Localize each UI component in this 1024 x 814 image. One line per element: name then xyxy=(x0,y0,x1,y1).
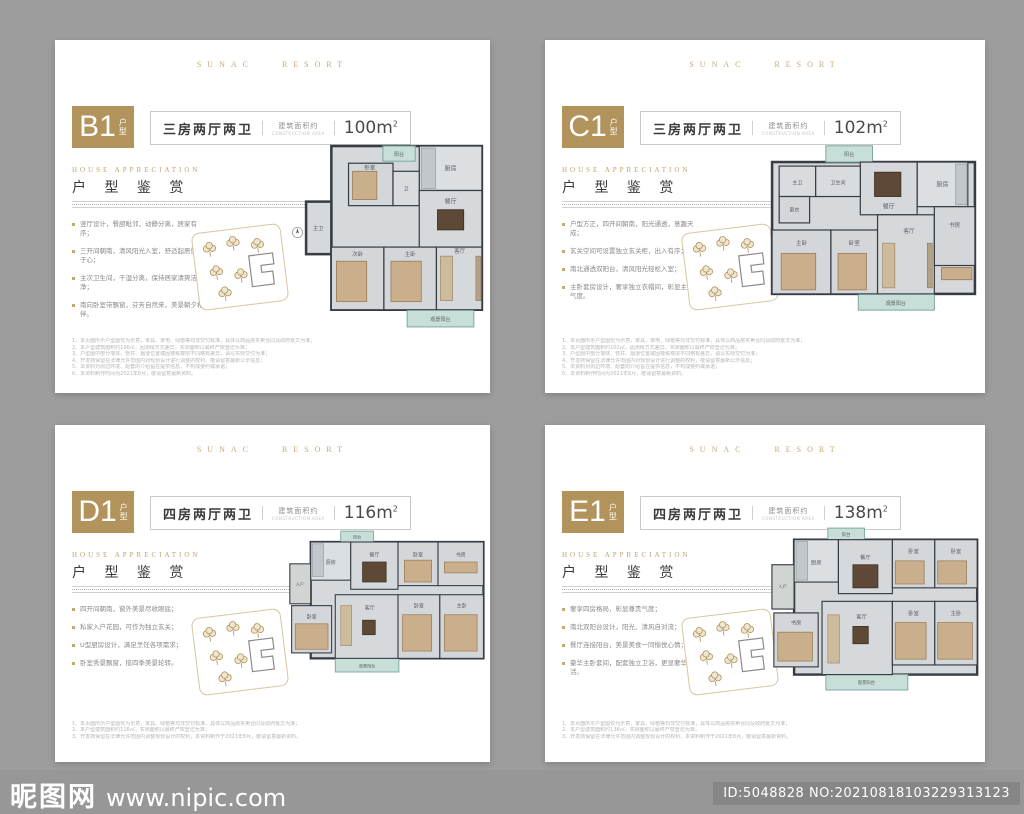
poster-canvas: SUNAC RESORT B1 户 型 三房两厅两卫 建筑面积约 CONSTRU… xyxy=(0,0,1024,814)
site-map-graphic xyxy=(682,609,779,695)
watermark-bar: 昵图网 www.nipic.com ID:5048828 NO:20210818… xyxy=(0,770,1024,814)
section-title-cn: 户 型 鉴 赏 xyxy=(562,177,680,197)
svg-text:客厅: 客厅 xyxy=(365,604,375,611)
area-label: 建筑面积约 CONSTRUCTION AREA xyxy=(762,121,815,136)
svg-text:客厅: 客厅 xyxy=(856,613,867,621)
spec-box: 三房两厅两卫 建筑面积约 CONSTRUCTION AREA 100m2 xyxy=(150,111,411,145)
section-title-en: HOUSE APPRECIATION xyxy=(72,166,200,174)
room-count-label: 四房两厅两卫 xyxy=(653,504,743,523)
divider xyxy=(262,121,263,135)
floorplan-card-c1: SUNAC RESORT C1 户 型 三房两厅两卫 建筑面积约 CONSTRU… xyxy=(545,40,985,393)
divider xyxy=(824,506,825,520)
unit-badge-d1: D1 户 型 xyxy=(72,491,134,533)
brand-title: SUNAC RESORT xyxy=(55,60,490,69)
site-url-link[interactable]: www.nipic.com xyxy=(106,784,286,812)
svg-text:主卫: 主卫 xyxy=(313,225,323,232)
site-map-graphic xyxy=(192,224,289,310)
svg-text:餐厅: 餐厅 xyxy=(445,198,457,206)
text-line: 户型方正，四开间朝南，阳光通透，意趣天成； xyxy=(562,220,694,238)
svg-text:次卧: 次卧 xyxy=(352,250,364,258)
floorplan-card-b1: SUNAC RESORT B1 户 型 三房两厅两卫 建筑面积约 CONSTRU… xyxy=(55,40,490,393)
dotted-divider xyxy=(72,586,315,593)
text-line: 豪华主卧套间，配套独立卫浴，更显奢华生活。 xyxy=(562,659,694,677)
text-line: 3、开发商保留在法律允许范围内调整规划设计的权利，本资料制作于2021年8月，敬… xyxy=(72,734,470,741)
feature-bullet-list: 奢享四房格局，彰显尊贵气度；南北双阳台设计，阳光、清风自对流；餐厅连接阳台，美景… xyxy=(562,605,694,686)
text-line: 四开间朝南，窗外美景尽收眼底； xyxy=(72,605,204,614)
svg-text:主卧: 主卧 xyxy=(457,602,467,609)
text-line: 竖厅设计，餐厨毗邻，动静分离，居家有序； xyxy=(72,220,204,238)
unit-badge-e1: E1 户 型 xyxy=(562,491,624,533)
floorplan-card-e1: SUNAC RESORT E1 户 型 四房两厅两卫 建筑面积约 CONSTRU… xyxy=(545,425,985,762)
svg-text:卧室: 卧室 xyxy=(364,163,376,171)
unit-suffix: 户 型 xyxy=(119,118,127,136)
area-label: 建筑面积约 CONSTRUCTION AREA xyxy=(272,121,325,136)
svg-text:卫: 卫 xyxy=(404,186,409,192)
text-line: 主次卫生间，干湿分离，保持居家清爽洁净； xyxy=(72,274,204,292)
svg-text:厨房: 厨房 xyxy=(445,164,457,172)
text-line: 南北双阳台设计，阳光、清风自对流； xyxy=(562,623,694,632)
divider xyxy=(334,506,335,520)
dotted-divider xyxy=(72,201,315,208)
unit-code: C1 xyxy=(568,112,606,142)
section-title-en: HOUSE APPRECIATION xyxy=(562,166,690,174)
svg-text:主卧: 主卧 xyxy=(951,609,962,617)
text-line: 主卧套房设计，奢享独立衣帽间，彰显主人气度。 xyxy=(562,283,694,301)
text-line: 奢享四房格局，彰显尊贵气度； xyxy=(562,605,694,614)
svg-text:卧室: 卧室 xyxy=(908,547,919,555)
floor-plan-d1: 入户阳台厨房餐厅卧室书房客厅卧室卧室主卧观景阳台 xyxy=(288,527,488,677)
room-count-label: 三房两厅两卫 xyxy=(653,119,743,138)
legal-disclaimer: 1、本页面所示户型图仅为示意，家具、家电、绿植等均非交付标准，具体以商品房买卖合… xyxy=(562,338,965,377)
svg-text:卧室: 卧室 xyxy=(414,602,424,609)
svg-text:主卧: 主卧 xyxy=(405,250,417,258)
svg-text:客厅: 客厅 xyxy=(903,227,915,235)
floor-plan-c1: 阳台厨房餐厅主卫卫生间更衣主卧卧室客厅书房观景阳台 xyxy=(767,140,980,320)
svg-text:阳台: 阳台 xyxy=(353,533,361,539)
area-value: 100m2 xyxy=(344,118,398,138)
svg-text:阳台: 阳台 xyxy=(844,151,854,158)
brand-title: SUNAC RESORT xyxy=(545,60,985,69)
divider xyxy=(262,506,263,520)
text-line: 6、本资料制作时间为2021年8月，敬请留意最新资料。 xyxy=(72,371,470,378)
svg-text:观景阳台: 观景阳台 xyxy=(886,300,906,307)
site-logo: 昵图网 www.nipic.com xyxy=(10,775,286,814)
svg-text:卧室: 卧室 xyxy=(413,552,423,559)
legal-disclaimer: 1、本页面所示户型图仅为示意，家具、绿植等均非交付标准，具体以商品房买卖合同及政… xyxy=(72,721,470,741)
unit-suffix: 户 型 xyxy=(120,503,128,521)
site-location-map xyxy=(191,608,290,696)
text-line: 南北通透双阳台，清风阳光轻松入室； xyxy=(562,265,694,274)
svg-text:餐厅: 餐厅 xyxy=(369,552,379,559)
svg-text:卧室: 卧室 xyxy=(307,613,317,620)
section-title-en: HOUSE APPRECIATION xyxy=(562,551,690,559)
svg-text:书房: 书房 xyxy=(949,221,961,229)
section-title-cn: 户 型 鉴 赏 xyxy=(72,177,190,197)
feature-bullet-list: 四开间朝南，窗外美景尽收眼底；私家入户花园，可作为独立玄关；U型厨房设计，满足烹… xyxy=(72,605,204,677)
area-value: 102m2 xyxy=(834,118,888,138)
svg-text:厨房: 厨房 xyxy=(811,559,822,567)
site-name: 昵图网 xyxy=(10,775,97,814)
svg-text:书房: 书房 xyxy=(456,552,466,559)
svg-text:卧室: 卧室 xyxy=(951,547,962,555)
site-location-map xyxy=(191,223,290,311)
svg-text:书房: 书房 xyxy=(791,618,802,626)
unit-suffix: 户 型 xyxy=(610,118,618,136)
section-title-cn: 户 型 鉴 赏 xyxy=(72,562,190,582)
svg-text:更衣: 更衣 xyxy=(789,207,799,214)
unit-badge-c1: C1 户 型 xyxy=(562,106,624,148)
site-map-graphic xyxy=(682,224,779,310)
section-title-en: HOUSE APPRECIATION xyxy=(72,551,200,559)
legal-disclaimer: 1、本页面所示户型图仅为示意，家具、家电、绿植等均非交付标准，具体以商品房买卖合… xyxy=(72,338,470,377)
brand-title: SUNAC RESORT xyxy=(55,445,490,454)
svg-text:卫生间: 卫生间 xyxy=(830,179,845,186)
text-line: 餐厅连接阳台，美景美食一同愉悦心情； xyxy=(562,641,694,650)
divider xyxy=(752,506,753,520)
section-title-cn: 户 型 鉴 赏 xyxy=(562,562,680,582)
feature-bullet-list: 户型方正，四开间朝南，阳光通透，意趣天成；玄关空间可设置独立玄关柜，出入有序；南… xyxy=(562,220,694,310)
floor-plan-b1: 厨房阳台餐厅卧室卫主卫次卧主卧客厅观景阳台 xyxy=(298,143,490,335)
svg-text:阳台: 阳台 xyxy=(842,531,851,538)
site-map-graphic xyxy=(192,609,289,695)
text-line: 6、本资料制作时间为2021年8月，敬请留意最新资料。 xyxy=(562,371,965,378)
unit-suffix: 户 型 xyxy=(609,503,617,521)
area-value: 138m2 xyxy=(834,503,888,523)
unit-code: E1 xyxy=(569,497,606,527)
room-count-label: 三房两厅两卫 xyxy=(163,119,253,138)
svg-text:观景阳台: 观景阳台 xyxy=(359,662,375,668)
dotted-divider xyxy=(562,586,805,593)
brand-title: SUNAC RESORT xyxy=(545,445,985,454)
svg-text:入户: 入户 xyxy=(778,583,787,590)
svg-text:入户: 入户 xyxy=(296,581,304,587)
site-location-map xyxy=(681,223,780,311)
image-id-badge: ID:5048828 NO:20210818103229313123 xyxy=(713,782,1020,805)
svg-text:厨房: 厨房 xyxy=(326,559,336,566)
divider xyxy=(824,121,825,135)
divider xyxy=(752,121,753,135)
unit-code: B1 xyxy=(79,112,116,142)
floorplan-card-d1: SUNAC RESORT D1 户 型 四房两厅两卫 建筑面积约 CONSTRU… xyxy=(55,425,490,762)
svg-text:主卫: 主卫 xyxy=(792,179,802,186)
svg-text:卧室: 卧室 xyxy=(849,239,861,247)
text-line: 三开间朝南，清风阳光入室，舒适起居悦然于心； xyxy=(72,247,204,265)
svg-text:卧室: 卧室 xyxy=(908,609,919,617)
svg-text:客厅: 客厅 xyxy=(454,247,466,255)
svg-text:观景阳台: 观景阳台 xyxy=(858,679,875,686)
svg-text:主卧: 主卧 xyxy=(796,239,808,247)
area-value: 116m2 xyxy=(344,503,398,523)
svg-text:餐厅: 餐厅 xyxy=(860,553,871,561)
svg-text:阳台: 阳台 xyxy=(394,151,404,158)
area-label: 建筑面积约 CONSTRUCTION AREA xyxy=(762,506,815,521)
site-location-map xyxy=(681,608,780,696)
legal-disclaimer: 1、本页面所示户型图仅为示意，家具、绿植等均非交付标准，具体以商品房买卖合同及政… xyxy=(562,721,965,741)
svg-text:观景阳台: 观景阳台 xyxy=(430,316,450,323)
svg-text:餐厅: 餐厅 xyxy=(883,203,895,211)
text-line: 玄关空间可设置独立玄关柜，出入有序； xyxy=(562,247,694,256)
room-count-label: 四房两厅两卫 xyxy=(163,504,253,523)
text-line: 私家入户花园，可作为独立玄关； xyxy=(72,623,204,632)
divider xyxy=(334,121,335,135)
floor-plan-e1: 入户阳台厨房餐厅卧室卧室书房客厅卧室主卧观景阳台 xyxy=(770,523,982,698)
feature-bullet-list: 竖厅设计，餐厨毗邻，动静分离，居家有序；三开间朝南，清风阳光入室，舒适起居悦然于… xyxy=(72,220,204,328)
svg-text:厨房: 厨房 xyxy=(936,180,948,188)
unit-code: D1 xyxy=(78,497,116,527)
area-label: 建筑面积约 CONSTRUCTION AREA xyxy=(272,506,325,521)
unit-badge-b1: B1 户 型 xyxy=(72,106,134,148)
text-line: 南向卧室带飘窗，芬芳自然来，美景朝夕相伴。 xyxy=(72,301,204,319)
spec-box: 四房两厅两卫 建筑面积约 CONSTRUCTION AREA 116m2 xyxy=(150,496,411,530)
text-line: 3、开发商保留在法律允许范围内调整规划设计的权利，本资料制作于2021年8月，敬… xyxy=(562,734,965,741)
text-line: 卧室秀景飘窗，揽四季美景轮转。 xyxy=(72,659,204,668)
text-line: U型厨房设计，满足烹饪各项需求； xyxy=(72,641,204,650)
